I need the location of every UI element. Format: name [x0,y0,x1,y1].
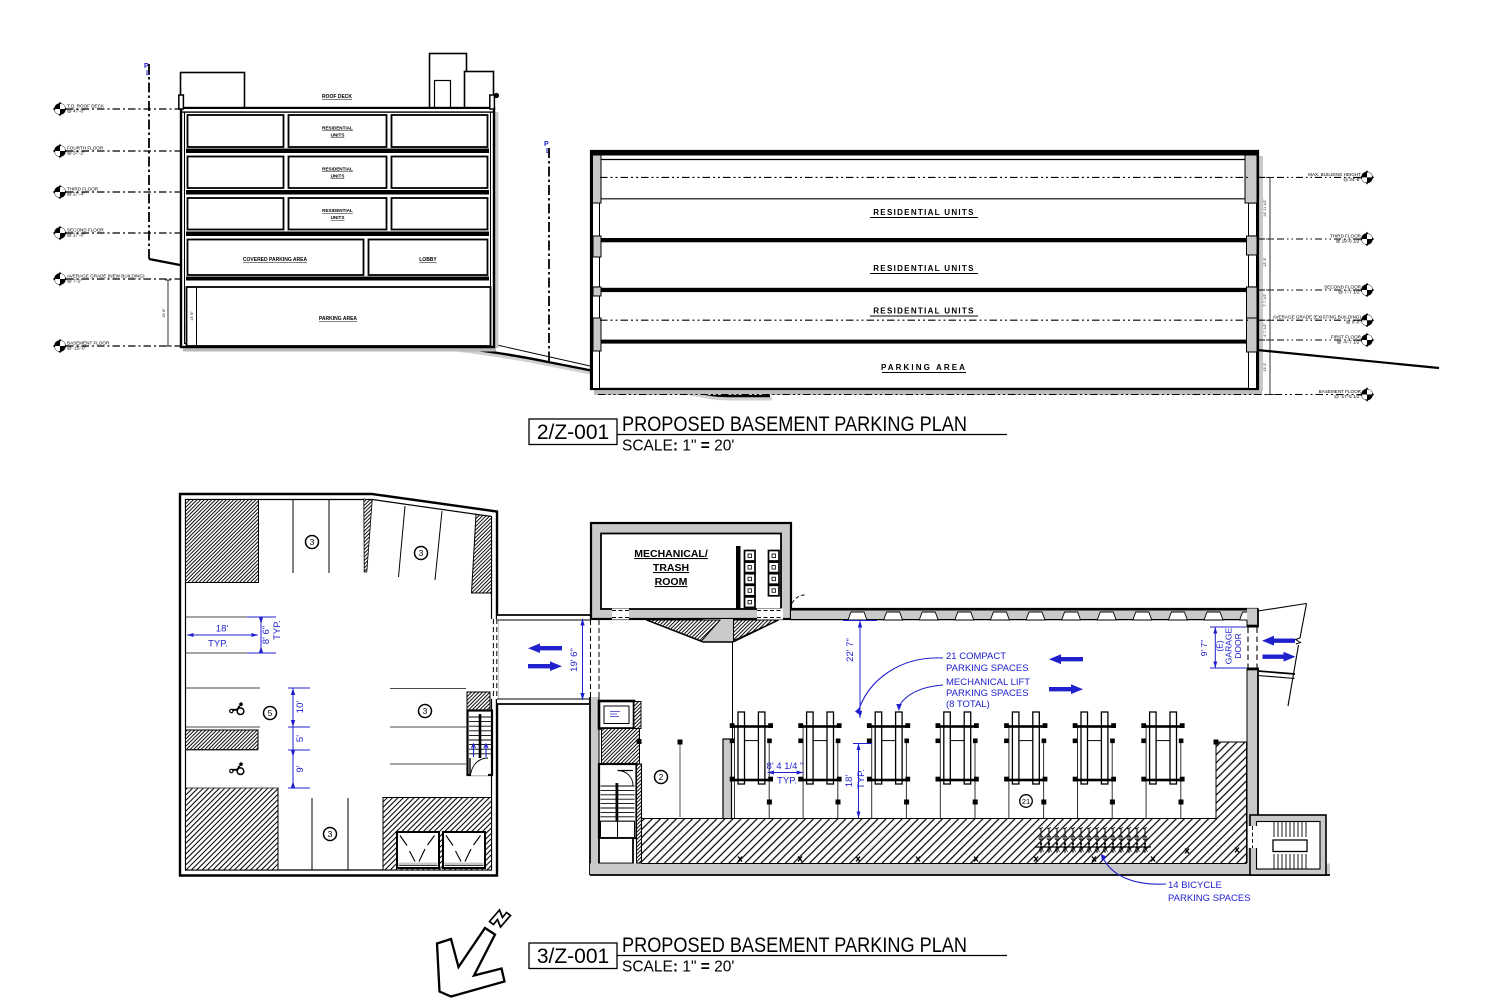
svg-text:PROPOSED BASEMENT PARKING PLAN: PROPOSED BASEMENT PARKING PLAN [622,933,967,957]
svg-text:@ 7'-2": @ 7'-2" [67,279,82,284]
svg-text:12' 3": 12' 3" [1263,257,1267,267]
svg-text:@ 37'-2": @ 37'-2" [67,151,85,156]
svg-text:DOOR: DOOR [1233,633,1243,659]
svg-text:SCALE: 1" = 20': SCALE: 1" = 20' [622,438,734,455]
svg-text:2/Z-001: 2/Z-001 [537,421,609,444]
svg-text:ROOM: ROOM [655,576,688,588]
svg-text:3: 3 [310,537,315,547]
svg-text:LOBBY: LOBBY [419,257,437,263]
svg-text:PROPOSED BASEMENT PARKING PLAN: PROPOSED BASEMENT PARKING PLAN [622,412,967,436]
svg-text:18': 18' [216,624,229,635]
svg-text:8' 6": 8' 6" [261,626,272,644]
svg-text:10': 10' [295,701,306,714]
svg-text:9' 7": 9' 7" [1199,640,1209,656]
svg-text:8' 4 1/4 ": 8' 4 1/4 " [767,761,804,772]
svg-text:RESIDENTIAL UNITS: RESIDENTIAL UNITS [873,307,975,316]
svg-text:3/Z-001: 3/Z-001 [537,945,609,968]
svg-text:@ -4'-7 1/2": @ -4'-7 1/2" [1337,340,1362,345]
svg-text:18': 18' [844,775,855,788]
svg-text:3: 3 [419,548,424,558]
svg-text:TRASH: TRASH [653,562,689,574]
svg-text:PARKING SPACES: PARKING SPACES [946,663,1029,674]
svg-text:RESIDENTIAL: RESIDENTIAL [322,208,353,213]
svg-text:MECHANICAL/: MECHANICAL/ [634,548,708,560]
svg-text:TYP.: TYP. [777,776,797,787]
svg-text:4' 7 1/2": 4' 7 1/2" [1263,323,1267,337]
svg-text:@ 19'-6 1/2": @ 19'-6 1/2" [1336,239,1362,244]
svg-text:@ -17'-5 1/2": @ -17'-5 1/2" [1334,394,1361,399]
svg-text:PARKING SPACES: PARKING SPACES [946,688,1029,699]
svg-text:19' 6": 19' 6" [569,648,580,672]
svg-text:2: 2 [659,772,664,782]
svg-text:RESIDENTIAL UNITS: RESIDENTIAL UNITS [873,208,975,217]
svg-text:@ -15'-0": @ -15'-0" [67,346,87,351]
svg-text:RESIDENTIAL UNITS: RESIDENTIAL UNITS [873,264,975,273]
svg-text:(8 TOTAL): (8 TOTAL) [946,699,990,710]
svg-text:3: 3 [328,829,333,839]
svg-text:@ 27'-4": @ 27'-4" [67,192,85,197]
svg-text:TYP.: TYP. [272,620,283,640]
svg-text:5': 5' [295,735,306,742]
svg-text:9': 9' [295,765,306,772]
svg-text:COVERED PARKING AREA: COVERED PARKING AREA [243,257,308,263]
svg-text:@ 0'-0": @ 0'-0" [1346,320,1361,325]
svg-text:UNITS: UNITS [331,174,345,179]
svg-text:UNITS: UNITS [331,215,345,220]
svg-text:RESIDENTIAL: RESIDENTIAL [322,167,353,172]
svg-text:TYP.: TYP. [208,639,228,650]
svg-text:SCALE: 1" = 20': SCALE: 1" = 20' [622,959,734,976]
svg-text:RESIDENTIAL: RESIDENTIAL [322,126,353,131]
svg-text:TYP.: TYP. [856,769,867,789]
svg-text:21: 21 [1022,797,1030,806]
svg-text:16' 6": 16' 6" [162,308,166,318]
svg-text:P: P [544,141,549,148]
svg-text:3: 3 [423,706,428,716]
svg-text:@ 7'-7 1/2": @ 7'-7 1/2" [1338,290,1361,295]
svg-text:UNITS: UNITS [331,133,345,138]
svg-text:7' 7 1/2": 7' 7 1/2" [1263,293,1267,307]
svg-text:GARAGE: GARAGE [1224,627,1234,664]
svg-text:@ 34'-6": @ 34'-6" [1343,177,1361,182]
svg-text:PARKING AREA: PARKING AREA [881,363,967,372]
svg-text:21 COMPACT: 21 COMPACT [946,651,1006,662]
svg-text:MECHANICAL LIFT: MECHANICAL LIFT [946,677,1030,688]
svg-text:13' 2": 13' 2" [1263,362,1267,372]
svg-text:14' 11 1/2": 14' 11 1/2" [1263,199,1267,217]
svg-text:22' 7": 22' 7" [845,638,856,662]
svg-text:PARKING SPACES: PARKING SPACES [1168,893,1251,904]
svg-text:PARKING AREA: PARKING AREA [319,316,357,322]
svg-text:ROOF DECK: ROOF DECK [322,94,352,100]
svg-text:5: 5 [268,708,273,718]
svg-text:@ 47'-0": @ 47'-0" [67,109,85,114]
svg-text:14' 6": 14' 6" [190,311,194,321]
svg-text:14 BICYCLE: 14 BICYCLE [1168,880,1222,891]
svg-text:@ 17'-6": @ 17'-6" [67,233,85,238]
